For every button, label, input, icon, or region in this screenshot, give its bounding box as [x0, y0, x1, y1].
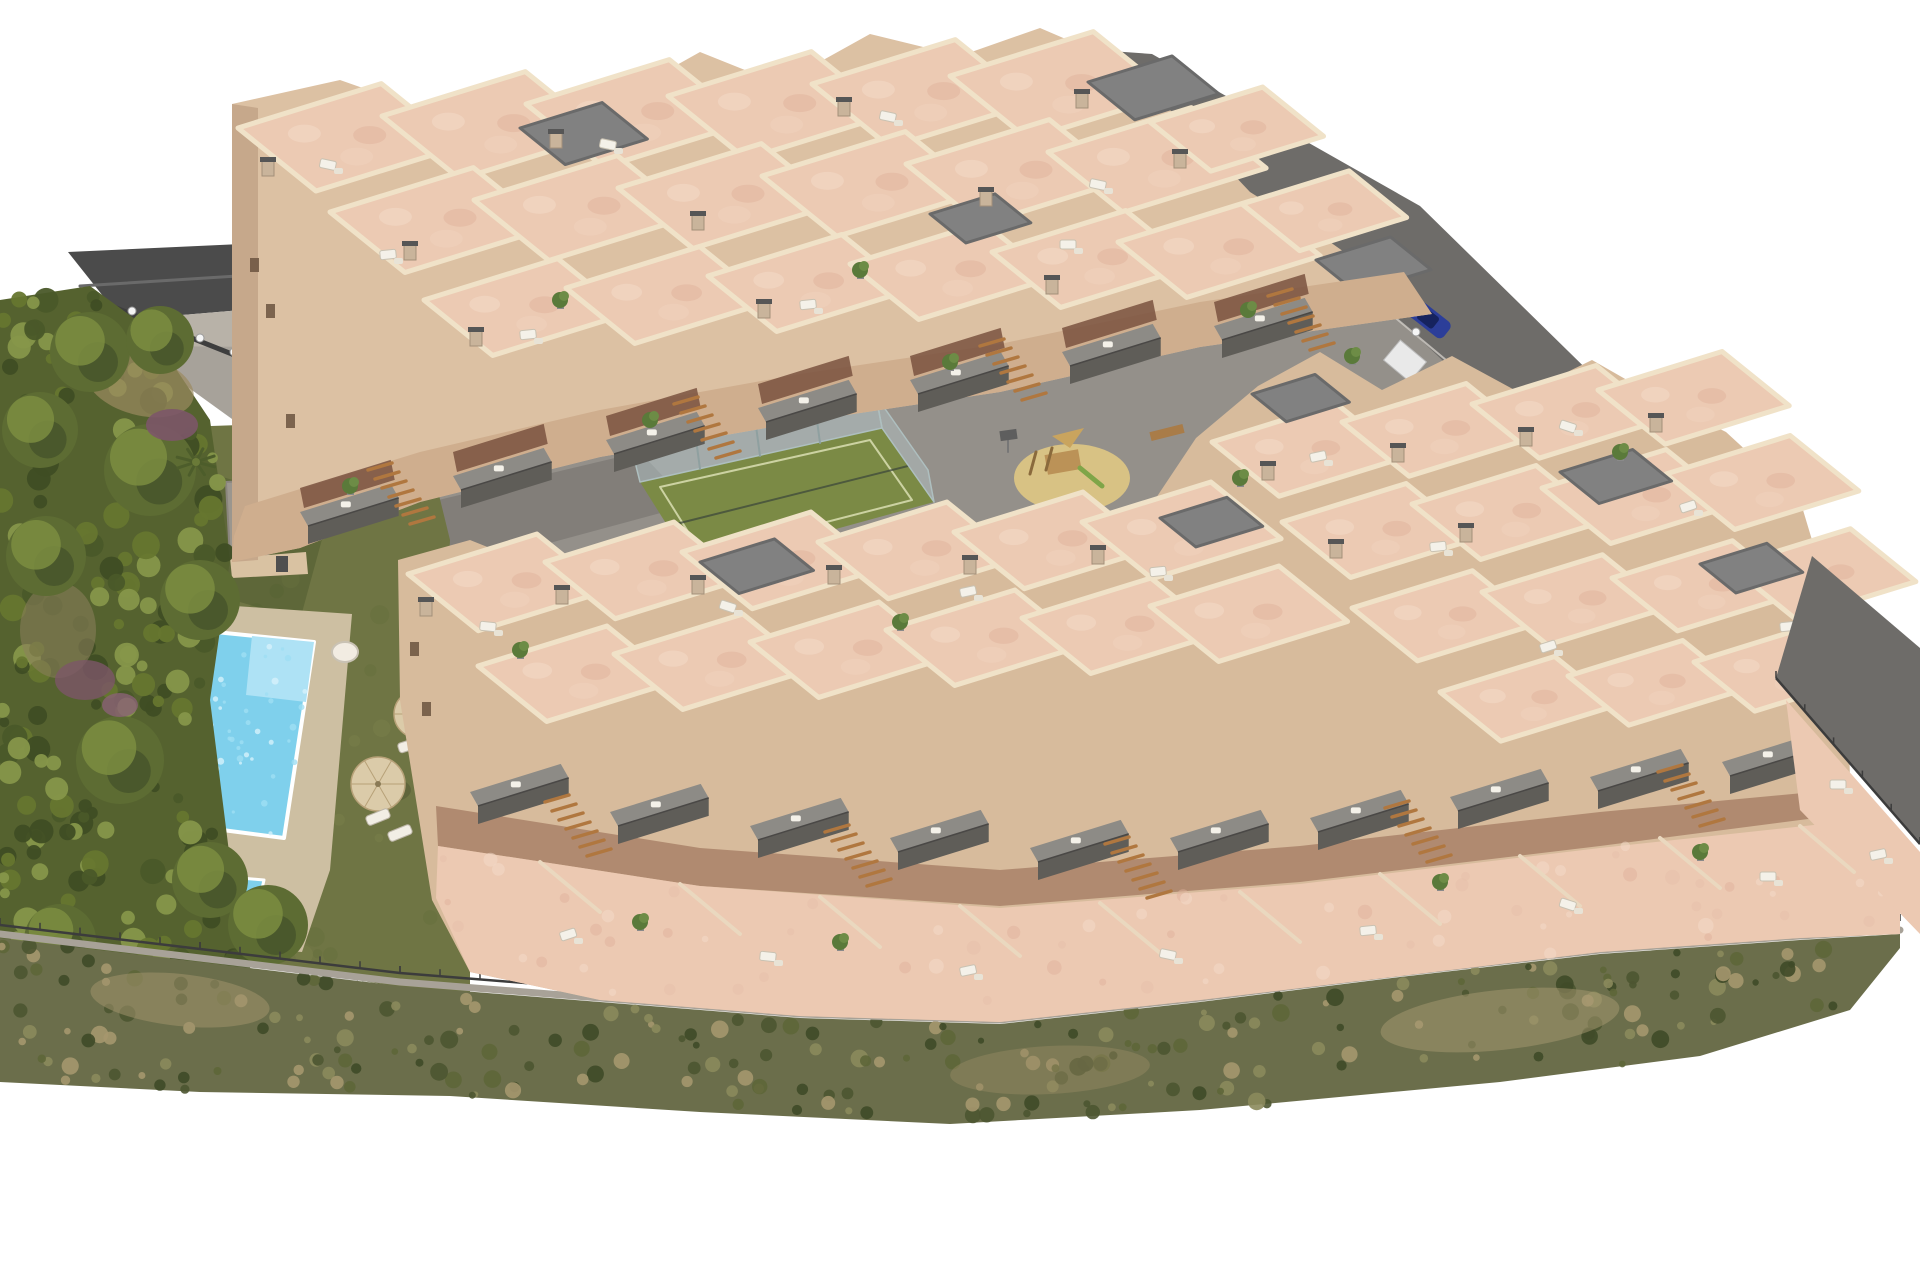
- chimney-cap: [978, 187, 994, 192]
- balcony-furniture: [1071, 837, 1081, 843]
- pool-sparkle: [232, 810, 235, 813]
- pool-sparkle: [267, 644, 273, 650]
- terrace-mottle: [1136, 909, 1147, 920]
- pool-sparkle: [228, 729, 232, 733]
- terrace-mottle: [718, 206, 751, 224]
- terrace-mottle: [1385, 419, 1414, 435]
- scrub-texture: [1217, 1088, 1224, 1095]
- terrace-mottle: [717, 652, 747, 668]
- scrub-texture: [345, 1011, 354, 1020]
- tree-canopy-texture: [140, 859, 165, 884]
- pool-sparkle: [272, 678, 279, 685]
- tree-canopy-texture: [156, 894, 176, 914]
- scrub-texture: [925, 1038, 937, 1050]
- terrace-mottle: [574, 218, 607, 236]
- chimney: [692, 214, 704, 230]
- terrace-mottle: [1540, 923, 1546, 929]
- scrub-texture: [1610, 989, 1618, 997]
- scrub-texture: [682, 1076, 693, 1087]
- lawn-texture: [364, 664, 376, 676]
- scrub-texture: [644, 1014, 653, 1023]
- pool-sparkle: [240, 740, 244, 744]
- pool-sparkle: [244, 709, 249, 714]
- pool-sparkle: [217, 758, 224, 765]
- balcony-furniture: [1351, 807, 1361, 813]
- terrace-mottle: [440, 855, 447, 862]
- terrace-mottle: [664, 984, 675, 995]
- window: [410, 642, 419, 656]
- terrace-mottle: [1141, 981, 1154, 994]
- scrub-texture: [524, 1061, 534, 1071]
- terrace-mottle: [671, 284, 702, 301]
- scrub-texture: [760, 1049, 772, 1061]
- tree-canopy-texture: [78, 812, 89, 823]
- balcony-furniture: [341, 501, 351, 507]
- lawn-texture: [313, 949, 322, 958]
- scrub-texture: [1534, 1052, 1544, 1062]
- outdoor-furniture: [1694, 510, 1703, 516]
- scrub-texture: [1458, 978, 1465, 985]
- scrub-texture: [30, 963, 42, 975]
- tree-highlight: [165, 564, 215, 614]
- tree-canopy-texture: [178, 712, 192, 726]
- scrub-texture: [416, 1059, 424, 1067]
- terrace-mottle: [899, 962, 911, 974]
- terrace-mottle: [1649, 691, 1675, 705]
- terrace-mottle: [1210, 258, 1241, 275]
- chimney: [420, 600, 432, 616]
- scrub-texture: [1828, 1001, 1837, 1010]
- outdoor-furniture: [1074, 248, 1083, 254]
- tree-canopy-texture: [173, 793, 183, 803]
- scrub-texture: [1603, 979, 1613, 989]
- terrace-mottle: [1566, 911, 1572, 917]
- outdoor-furniture: [334, 168, 343, 174]
- terrace-mottle: [811, 172, 844, 190]
- scrub-texture: [1108, 1103, 1116, 1111]
- terrace-mottle: [669, 886, 680, 897]
- chimney: [1262, 464, 1274, 480]
- terrace-mottle: [1358, 905, 1372, 919]
- scrub-texture: [1812, 959, 1825, 972]
- terrace-mottle: [590, 559, 620, 575]
- terrace-mottle: [1007, 926, 1020, 939]
- scrub-texture: [1173, 1039, 1187, 1053]
- terrace-mottle: [759, 972, 769, 982]
- terrace-mottle: [955, 260, 986, 277]
- terrace-mottle: [1568, 608, 1596, 623]
- terrace-mottle: [862, 194, 895, 212]
- scrub-texture: [1752, 979, 1758, 985]
- scrub-texture: [711, 1021, 729, 1039]
- terrace-mottle: [787, 928, 794, 935]
- pool-sparkle: [287, 739, 290, 742]
- tree-canopy-texture: [46, 756, 61, 771]
- terrace-mottle: [1442, 420, 1471, 436]
- scrub-texture: [1166, 1083, 1180, 1097]
- scrub-texture: [109, 1069, 121, 1081]
- scrub-texture: [1543, 961, 1557, 975]
- scrub-texture: [257, 1023, 269, 1035]
- scrub-texture: [319, 976, 334, 991]
- outdoor-furniture: [1430, 541, 1447, 552]
- pool-sparkle: [271, 774, 276, 779]
- scrub-texture: [860, 1055, 871, 1066]
- chimney: [1174, 152, 1186, 168]
- terrace-mottle: [512, 572, 542, 588]
- outdoor-furniture: [1360, 925, 1377, 936]
- terrace-mottle: [1214, 963, 1225, 974]
- balcony-furniture: [1763, 751, 1773, 757]
- scrub-texture: [214, 1067, 222, 1075]
- chimney-cap: [1172, 149, 1188, 154]
- terrace-mottle: [522, 663, 552, 679]
- pool-sparkle: [302, 689, 307, 694]
- scrub-texture: [1068, 1029, 1078, 1039]
- scrub-texture: [842, 1088, 854, 1100]
- scrub-texture: [1125, 1040, 1132, 1047]
- chimney: [1392, 446, 1404, 462]
- scrub-texture: [484, 1070, 502, 1088]
- terrace-mottle: [1006, 182, 1039, 200]
- scrub-texture: [440, 1031, 458, 1049]
- scrub-texture: [1397, 977, 1410, 990]
- terrace-mottle: [1856, 879, 1865, 888]
- chimney-cap: [402, 241, 418, 246]
- pool-sparkle: [285, 655, 291, 661]
- terrace-mottle: [1047, 960, 1062, 975]
- outdoor-furniture: [534, 338, 543, 344]
- terrace-mottle: [1692, 902, 1702, 912]
- scrub-texture: [860, 1106, 873, 1119]
- pool-sparkle: [213, 696, 218, 701]
- scrub-texture: [761, 1017, 777, 1033]
- outdoor-furniture: [1760, 872, 1776, 881]
- chimney-cap: [962, 555, 978, 560]
- balcony-furniture: [1491, 786, 1501, 792]
- scrub-texture: [1227, 1028, 1237, 1038]
- tree-canopy-texture: [115, 643, 139, 667]
- purple-shrub: [146, 409, 198, 441]
- chimney-cap: [548, 129, 564, 134]
- terrace-mottle: [813, 272, 844, 289]
- terrace-mottle: [452, 921, 463, 932]
- terrace-mottle: [770, 116, 803, 134]
- tree-canopy-texture: [184, 920, 202, 938]
- chimney-cap: [756, 299, 772, 304]
- tree-canopy-texture: [137, 661, 148, 672]
- terrace-mottle: [1223, 238, 1254, 255]
- scrub-texture: [1099, 1027, 1114, 1042]
- scrub-texture: [1201, 1010, 1207, 1016]
- terrace-mottle: [1770, 891, 1776, 897]
- scrub-texture: [1619, 1061, 1626, 1068]
- terrace-mottle: [999, 529, 1029, 545]
- scrub-texture: [469, 1092, 476, 1099]
- scrub-texture: [59, 975, 70, 986]
- scrub-texture: [269, 1012, 280, 1023]
- pool-sparkle: [292, 759, 298, 765]
- terrace-mottle: [1449, 606, 1477, 621]
- outdoor-furniture: [480, 621, 497, 632]
- plant-highlight: [899, 613, 909, 623]
- plant-highlight: [349, 477, 359, 487]
- chimney-cap: [1648, 413, 1664, 418]
- chimney-cap: [690, 575, 706, 580]
- balcony-furniture: [799, 397, 809, 403]
- scrub-texture: [337, 1029, 354, 1046]
- block-north-west-face: [232, 104, 258, 562]
- lawn-texture: [370, 605, 389, 624]
- terrace-mottle: [1698, 388, 1727, 404]
- balcony-furniture: [1211, 827, 1221, 833]
- scrub-texture: [806, 1027, 820, 1041]
- terrace-mottle: [445, 899, 451, 905]
- scrub-texture: [391, 1001, 400, 1010]
- scrub-texture: [1337, 1060, 1347, 1070]
- terrace-mottle: [605, 936, 616, 947]
- balcony-furniture: [931, 827, 941, 833]
- terrace-mottle: [783, 94, 816, 112]
- terrace-mottle: [432, 113, 465, 131]
- pool-sparkle: [261, 800, 268, 807]
- scrub-texture: [688, 1062, 701, 1075]
- road-fence-post: [1412, 328, 1420, 336]
- terrace-mottle: [1733, 659, 1759, 673]
- scrub-texture: [505, 1082, 521, 1098]
- scrub-texture: [1148, 1044, 1157, 1053]
- terrace-mottle: [1203, 978, 1209, 984]
- tree-canopy-texture: [166, 670, 190, 694]
- terrace-mottle: [590, 924, 602, 936]
- pool-sparkle: [236, 746, 240, 750]
- lawn-texture: [375, 834, 384, 843]
- scrub-texture: [577, 1074, 589, 1086]
- outdoor-furniture: [1374, 934, 1383, 940]
- terrace-mottle: [1241, 623, 1271, 639]
- terrace-mottle: [841, 659, 871, 675]
- outdoor-furniture: [494, 630, 503, 636]
- lawn-texture: [323, 947, 338, 962]
- pool-sparkle: [268, 698, 273, 703]
- balcony-furniture: [1255, 315, 1265, 321]
- scrub-texture: [874, 1057, 885, 1068]
- outdoor-furniture: [1174, 958, 1183, 964]
- scrub-texture: [1273, 991, 1283, 1001]
- terrace-mottle: [1326, 519, 1355, 535]
- tree-canopy-texture: [28, 706, 47, 725]
- purple-shrub: [55, 660, 115, 700]
- scrub-texture: [1730, 952, 1744, 966]
- pool-sparkle: [281, 647, 284, 650]
- terrace-mottle: [560, 893, 570, 903]
- outdoor-furniture: [814, 308, 823, 314]
- terrace-mottle: [1058, 941, 1066, 949]
- terrace-mottle: [1163, 238, 1194, 255]
- scrub-texture: [729, 1059, 739, 1069]
- terrace-mottle: [443, 209, 476, 227]
- terrace-mottle: [1066, 615, 1096, 631]
- terrace-mottle: [1515, 401, 1544, 417]
- chimney: [980, 190, 992, 206]
- plant-highlight: [1351, 347, 1361, 357]
- pool-sparkle: [255, 729, 261, 735]
- terrace-mottle: [1524, 589, 1552, 604]
- terrace-mottle: [895, 260, 926, 277]
- outdoor-furniture: [1574, 430, 1583, 436]
- scrub-texture: [940, 1030, 955, 1045]
- terrace-mottle: [1695, 879, 1704, 888]
- terrace-mottle: [807, 898, 818, 909]
- tree-canopy-texture: [32, 863, 49, 880]
- scrub-texture: [1199, 1015, 1215, 1031]
- tree-canopy-texture: [29, 819, 53, 843]
- tree-canopy-texture: [90, 587, 109, 606]
- chimney-cap: [468, 327, 484, 332]
- terrace-mottle: [453, 571, 483, 587]
- outdoor-furniture: [1164, 575, 1173, 581]
- chimney-cap: [260, 157, 276, 162]
- tree-canopy-texture: [121, 911, 135, 925]
- scrub-texture: [1337, 1024, 1344, 1031]
- scrub-texture: [939, 1023, 946, 1030]
- tree-canopy-texture: [0, 888, 10, 898]
- scrub-texture: [160, 1058, 171, 1069]
- tree-canopy-texture: [132, 531, 160, 559]
- terrace-mottle: [658, 304, 689, 321]
- outdoor-furniture: [774, 960, 783, 966]
- terrace-mottle: [1148, 170, 1181, 188]
- scrub-texture: [312, 1054, 323, 1065]
- terrace-mottle: [1125, 616, 1155, 632]
- terrace-mottle: [1279, 201, 1304, 214]
- tree-canopy-texture: [97, 822, 114, 839]
- tree-highlight: [233, 889, 283, 939]
- chimney-cap: [418, 597, 434, 602]
- lawn-texture: [333, 814, 345, 826]
- pool-sparkle: [290, 724, 297, 731]
- tree-canopy-texture: [209, 474, 226, 491]
- tree-canopy-texture: [206, 828, 218, 840]
- terrace-mottle: [1521, 707, 1547, 721]
- wall-pillar: [128, 307, 136, 315]
- balcony-furniture: [494, 465, 504, 471]
- scrub-texture: [1625, 1029, 1636, 1040]
- terrace-mottle: [1511, 905, 1522, 916]
- pool-sparkle: [264, 655, 268, 659]
- balcony-furniture: [651, 801, 661, 807]
- balcony-furniture: [511, 781, 521, 787]
- scrub-texture: [614, 1053, 630, 1069]
- architectural-render: [0, 0, 1920, 1280]
- terrace-mottle: [1371, 540, 1400, 556]
- outdoor-furniture: [394, 258, 403, 264]
- tree-highlight: [55, 316, 105, 366]
- chimney-cap: [554, 585, 570, 590]
- terrace-mottle: [658, 651, 688, 667]
- terrace-mottle: [1531, 690, 1557, 704]
- chimney: [828, 568, 840, 584]
- plant-highlight: [1699, 843, 1709, 853]
- terrace-mottle: [1113, 635, 1143, 651]
- outdoor-furniture: [894, 120, 903, 126]
- scrub-texture: [456, 1028, 463, 1035]
- terrace-mottle: [1097, 248, 1128, 265]
- tree-canopy-texture: [16, 656, 28, 668]
- scrub-texture: [64, 1028, 71, 1035]
- chimney-cap: [1390, 443, 1406, 448]
- chimney: [262, 160, 274, 176]
- terrace-mottle: [1328, 202, 1353, 215]
- terrace-mottle: [1780, 911, 1790, 921]
- scrub-texture: [407, 1044, 417, 1054]
- tree-canopy-texture: [108, 574, 125, 591]
- outdoor-furniture: [1444, 550, 1453, 556]
- terrace-mottle: [611, 284, 642, 301]
- outdoor-furniture: [734, 610, 743, 616]
- scrub-texture: [482, 1044, 498, 1060]
- scrub-texture: [1223, 1062, 1240, 1079]
- terrace-mottle: [983, 996, 992, 1005]
- terrace-mottle: [1456, 878, 1469, 891]
- terrace-mottle: [853, 640, 883, 656]
- tree-canopy-texture: [91, 699, 101, 709]
- outdoor-furniture: [1104, 188, 1113, 194]
- terrace-mottle: [288, 125, 321, 143]
- pool-sparkle: [237, 755, 244, 762]
- chimney: [404, 244, 416, 260]
- scrub-texture: [752, 1079, 767, 1094]
- scrub-texture: [549, 1034, 562, 1047]
- window: [286, 414, 295, 428]
- terrace-mottle: [733, 984, 744, 995]
- scrub-texture: [1420, 1054, 1429, 1063]
- scrub-texture: [509, 1025, 520, 1036]
- scrub-texture: [679, 1035, 686, 1042]
- scrub-texture: [38, 1055, 46, 1063]
- scrub-texture: [18, 1038, 26, 1046]
- scrub-texture: [1673, 949, 1680, 956]
- terrace-mottle: [989, 628, 1019, 644]
- scrub-texture: [338, 1054, 352, 1068]
- terrace-mottle: [536, 957, 547, 968]
- outdoor-furniture: [1150, 566, 1167, 577]
- terrace-mottle: [1253, 604, 1283, 620]
- scrub-texture: [792, 1105, 802, 1115]
- scrub-texture: [1815, 941, 1832, 958]
- scrub-texture: [1023, 1110, 1030, 1117]
- scrub-texture: [1253, 1065, 1266, 1078]
- terrace-mottle: [967, 941, 981, 955]
- palm-crown: [192, 458, 200, 466]
- scrub-texture: [1222, 1022, 1230, 1030]
- tree-canopy-texture: [27, 296, 40, 309]
- terrace-mottle: [569, 683, 599, 699]
- terrace-mottle: [1654, 575, 1682, 590]
- chimney: [470, 330, 482, 346]
- terrace-mottle: [910, 560, 940, 576]
- tree-canopy-texture: [79, 799, 92, 812]
- outdoor-furniture: [974, 595, 983, 601]
- scrub-texture: [1119, 1103, 1127, 1111]
- terrace-mottle: [863, 539, 893, 555]
- terrace-mottle: [955, 160, 988, 178]
- scrub-texture: [845, 1107, 852, 1114]
- scrub-texture: [1235, 1012, 1246, 1023]
- scrub-texture: [1473, 1054, 1480, 1061]
- tree-canopy-texture: [24, 320, 39, 335]
- scrub-texture: [304, 1037, 311, 1044]
